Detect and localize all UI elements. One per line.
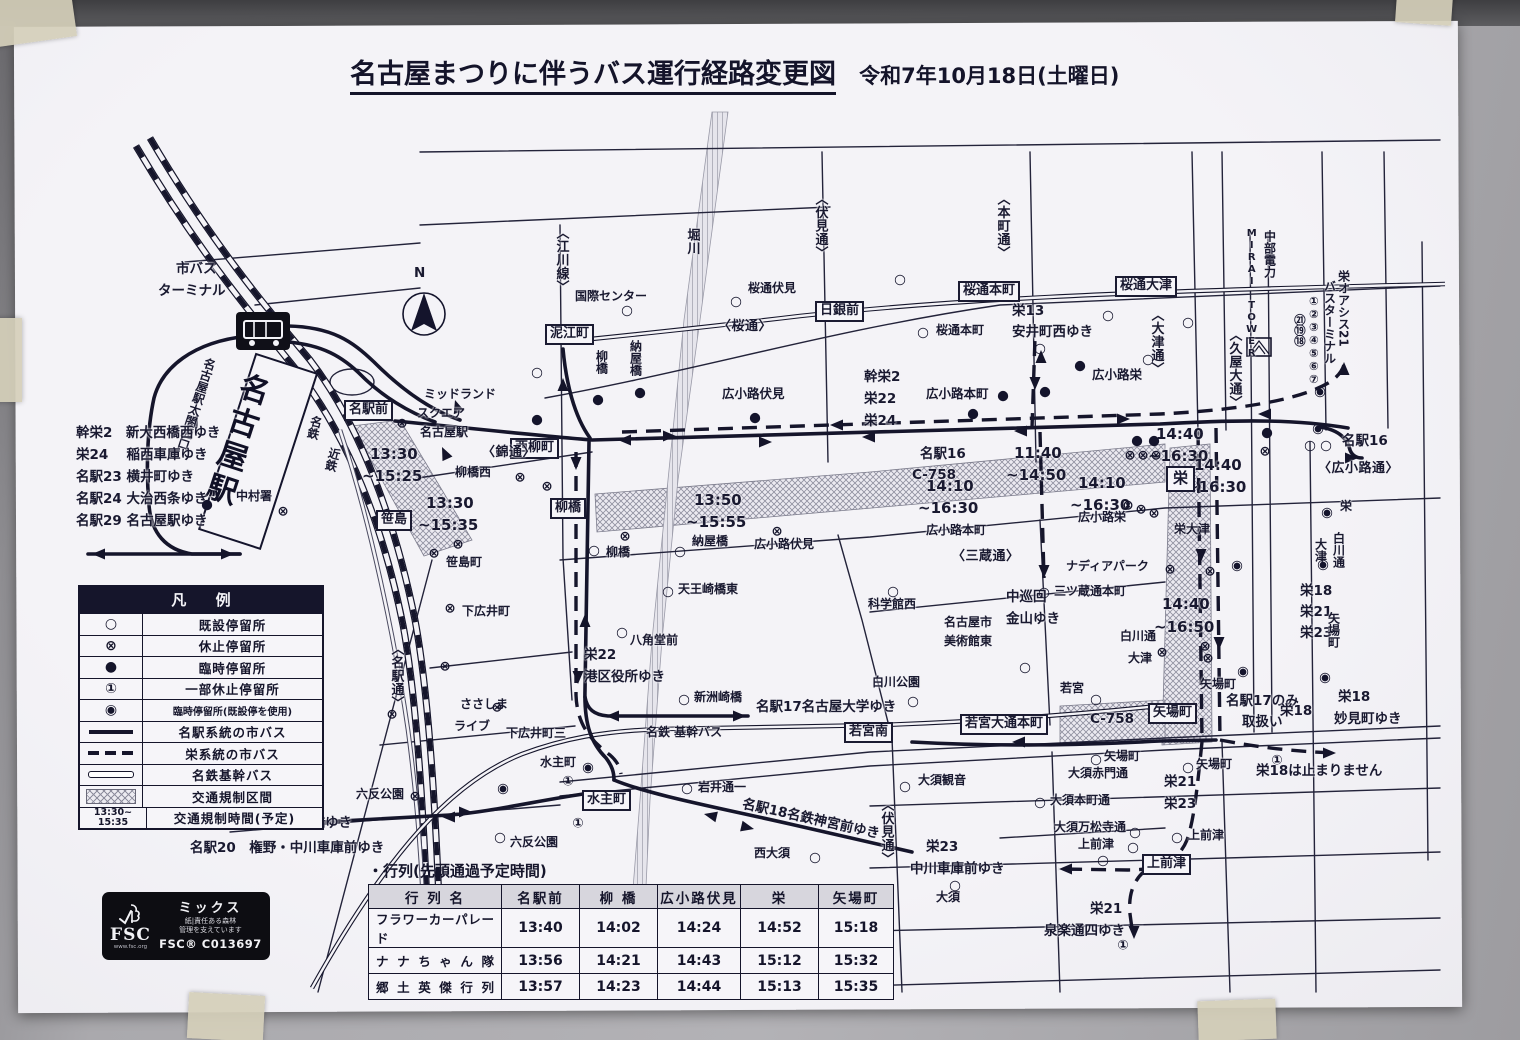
- bus-stop-symbol: ⊗: [491, 701, 502, 715]
- legend-symbol: ●: [80, 657, 143, 678]
- bus-stop-symbol: ⊗: [409, 790, 420, 804]
- schedule-note: ・行列(先頭通過予定時間): [368, 860, 894, 881]
- bus-stop-symbol: ⊗: [444, 602, 455, 616]
- col-header: 行 列 名: [369, 885, 502, 909]
- time-cell: 15:35: [819, 974, 894, 1000]
- bus-stop-symbol: ⊗: [619, 530, 630, 544]
- time-cell: 13:56: [502, 948, 580, 974]
- legend-rows: ○ 既設停留所 ⊗ 休止停留所 ● 臨時停留所 ① 一部休止停留所 ◉ 臨時停留…: [80, 613, 322, 828]
- legend-symbol: [80, 786, 143, 807]
- bus-stop-symbol: ⊗: [386, 708, 397, 722]
- bus-stop-symbol: ○: [621, 304, 633, 318]
- bus-stop-symbol: ○: [1090, 753, 1102, 767]
- bus-stop-symbol: ○: [616, 626, 628, 640]
- bus-stop-symbol: ○: [678, 693, 690, 707]
- bus-stop-symbol: ①: [562, 775, 573, 789]
- fsc-brand: FSC: [110, 927, 151, 944]
- parade-name: ナナちゃん隊: [369, 948, 502, 974]
- bus-stop-symbol: ⊗: [1164, 563, 1175, 577]
- legend-row: ○ 既設停留所: [80, 613, 322, 635]
- col-header: 広小路伏見: [658, 885, 741, 909]
- legend-symbol: [80, 765, 143, 786]
- legend-row: ⊗ 休止停留所: [80, 635, 322, 657]
- time-cell: 14:24: [658, 909, 741, 948]
- legend-symbol: ○: [80, 614, 143, 635]
- bus-stop-symbol: ○: [531, 366, 543, 380]
- col-header: 名駅前: [502, 885, 580, 909]
- bus-stop-symbol: ◉: [1312, 422, 1324, 436]
- legend-row: ● 臨時停留所: [80, 656, 322, 678]
- legend-box: 凡 例 ○ 既設停留所 ⊗ 休止停留所 ● 臨時停留所 ① 一部休止停留所 ◉ …: [78, 585, 324, 830]
- bus-stop-symbol: ①: [572, 817, 583, 831]
- time-cell: 15:32: [819, 948, 894, 974]
- bus-stop-symbol: ⊗: [1202, 652, 1213, 666]
- legend-label: 名駅系統の市バス: [143, 722, 322, 743]
- bus-stop-symbol: ○: [1182, 761, 1194, 775]
- bus-stop-symbol: ●: [1074, 359, 1086, 373]
- col-header: 矢場町: [819, 885, 894, 909]
- legend-row: 名鉄基幹バス: [80, 764, 322, 786]
- fsc-tree-icon: [117, 901, 143, 927]
- bus-stop-symbol: ○: [1304, 439, 1316, 453]
- bus-stop-symbol: ⊗: [1259, 445, 1270, 459]
- bus-stop-symbol: ●: [201, 498, 213, 512]
- table-row: 郷土英傑行列 13:57 14:23 14:44 15:13 15:35: [369, 974, 894, 1000]
- bus-stop-symbol: ⊗: [428, 547, 439, 561]
- legend-row: 交通規制区間: [80, 785, 322, 807]
- bus-stop-symbol: ○: [1102, 309, 1114, 323]
- page-title: 名古屋まつりに伴うバス運行経路変更図: [350, 59, 836, 95]
- bus-stop-symbol: ①: [1271, 754, 1282, 768]
- bus-stop-symbol: ◉: [1317, 558, 1329, 572]
- bus-stop-symbol: ○: [1320, 439, 1332, 453]
- bus-stop-symbol: ○: [494, 831, 506, 845]
- legend-symbol: ◉: [80, 700, 143, 721]
- bus-stop-symbol: ○: [674, 545, 686, 559]
- bus-stop-symbol: ○: [917, 326, 929, 340]
- bus-stop-symbol: ◉: [497, 782, 509, 796]
- bus-stop-symbol: ○: [1171, 831, 1183, 845]
- bus-stop-symbol: ○: [894, 273, 906, 287]
- time-cell: 13:57: [502, 974, 580, 1000]
- bus-stop-symbol: ◉: [582, 761, 594, 775]
- fsc-mix-label: ミックス: [179, 901, 243, 917]
- photo-scene: 市バスターミナルN〈江川線〉堀川国際センター桜通伏見〈桜通〉泥江町日銀前桜通本町…: [0, 0, 1520, 1040]
- bus-stop-symbol: ○: [662, 585, 674, 599]
- bus-stop-symbol: ○: [1129, 826, 1141, 840]
- bus-stop-symbol: ●: [749, 411, 761, 425]
- parade-schedule: ・行列(先頭通過予定時間) 行 列 名 名駅前 柳 橋 広小路伏見 栄 矢場町 …: [368, 860, 894, 1000]
- bus-stop-symbol: ⊗: [452, 538, 463, 552]
- bus-stop-symbol: ○: [949, 879, 961, 893]
- legend-symbol: [80, 722, 143, 743]
- bus-stop-symbol: ○: [1034, 796, 1046, 810]
- time-cell: 14:52: [741, 909, 819, 948]
- legend-label: 交通規制時間(予定): [147, 808, 322, 829]
- bus-stop-symbol: ○: [1038, 586, 1050, 600]
- bus-stop-symbol: ⊗: [277, 505, 288, 519]
- bus-stop-symbol: ◉: [1231, 559, 1243, 573]
- bus-stop-symbol: ⊗: [439, 660, 450, 674]
- time-cell: 15:12: [741, 948, 819, 974]
- schedule-header-row: 行 列 名 名駅前 柳 橋 広小路伏見 栄 矢場町: [369, 885, 894, 909]
- legend-label: 休止停留所: [143, 636, 322, 657]
- legend-row: ① 一部休止停留所: [80, 678, 322, 700]
- bus-stop-symbol: ○: [1034, 342, 1046, 356]
- bus-stop-symbol: ①: [1117, 939, 1128, 953]
- time-cell: 15:18: [819, 909, 894, 948]
- bus-stop-symbol: ⊗: [1122, 499, 1133, 513]
- legend-row: 名駅系統の市バス: [80, 721, 322, 743]
- bus-stop-symbol: ⊗: [1124, 449, 1135, 463]
- bus-stop-symbol: ◉: [1319, 671, 1331, 685]
- bus-stop-symbol: ⊗: [1156, 646, 1167, 660]
- legend-symbol: [80, 743, 143, 764]
- bus-stop-symbol: ●: [967, 407, 979, 421]
- bus-stop-symbol: ⊗: [541, 480, 552, 494]
- bus-stop-symbol: ⊗: [1135, 503, 1146, 517]
- bus-stop-symbol: ◉: [1314, 385, 1326, 399]
- fsc-url: www.fsc.org: [114, 945, 147, 951]
- bus-stop-symbol: ○: [907, 695, 919, 709]
- bus-stop-symbol: ○: [730, 295, 742, 309]
- bus-stop-symbol: ⊗: [396, 417, 407, 431]
- time-cell: 13:40: [502, 909, 580, 948]
- bus-stop-symbol: ○: [899, 780, 911, 794]
- bus-stop-symbol: ●: [592, 393, 604, 407]
- parade-name: 郷土英傑行列: [369, 974, 502, 1000]
- legend-title: 凡 例: [80, 587, 322, 613]
- legend-symbol: ⊗: [80, 636, 143, 657]
- time-cell: 14:02: [580, 909, 658, 948]
- bus-stop-symbol: ○: [1142, 353, 1154, 367]
- bus-stop-symbol: ⊗: [1204, 565, 1215, 579]
- legend-row: 13:30~ 15:35 交通規制時間(予定): [80, 807, 322, 829]
- bus-stop-symbol: ⊗: [1148, 507, 1159, 521]
- time-cell: 14:23: [580, 974, 658, 1000]
- legend-label: 一部休止停留所: [143, 679, 322, 700]
- bus-stop-symbol: ●: [634, 386, 646, 400]
- bus-stop-symbol: ●: [1039, 385, 1051, 399]
- bus-stop-symbol: ○: [1019, 661, 1031, 675]
- bus-stop-symbol: ●: [997, 389, 1009, 403]
- legend-label: 臨時停留所(既設停を使用): [143, 700, 322, 721]
- tape: [187, 992, 265, 1040]
- bus-stop-symbol: ⊗: [1150, 449, 1161, 463]
- fsc-code: FSC® C013697: [159, 937, 262, 951]
- legend-row: 栄系統の市バス: [80, 742, 322, 764]
- legend-label: 名鉄基幹バス: [143, 765, 322, 786]
- bus-stop-symbol: ○: [588, 544, 600, 558]
- legend-label: 臨時停留所: [143, 657, 322, 678]
- poster-header: 名古屋まつりに伴うバス運行経路変更図 令和7年10月18日(土曜日): [350, 52, 1119, 91]
- bus-stop-symbol: ◉: [1321, 506, 1333, 520]
- bus-stop-symbol: ○: [1182, 316, 1194, 330]
- bus-stop-symbol: ⊗: [514, 471, 525, 485]
- tape: [1395, 0, 1453, 26]
- bus-stop-symbol: ◉: [1237, 665, 1249, 679]
- legend-row: ◉ 臨時停留所(既設停を使用): [80, 699, 322, 721]
- legend-label: 既設停留所: [143, 614, 322, 635]
- time-cell: 14:44: [658, 974, 741, 1000]
- bus-stop-symbol: ○: [1090, 693, 1102, 707]
- bus-stop-symbol: ⊗: [771, 525, 782, 539]
- bus-stop-symbol: ●: [1261, 426, 1273, 440]
- tape: [0, 318, 22, 402]
- parade-name: フラワーカーパレード: [369, 909, 502, 948]
- time-cell: 14:43: [658, 948, 741, 974]
- bus-stop-symbol: ○: [1127, 841, 1139, 855]
- tape: [1197, 999, 1276, 1040]
- bus-stop-symbol: ○: [1097, 854, 1109, 868]
- bus-stop-symbol: ⊗: [1137, 449, 1148, 463]
- col-header: 柳 橋: [580, 885, 658, 909]
- bus-stop-symbol: ●: [1148, 434, 1160, 448]
- col-header: 栄: [741, 885, 819, 909]
- legend-symbol: ①: [80, 679, 143, 700]
- poster-date: 令和7年10月18日(土曜日): [859, 64, 1119, 88]
- time-cell: 15:13: [741, 974, 819, 1000]
- fsc-caption: 管理を支えています: [179, 926, 242, 935]
- bus-stop-symbol: ●: [1131, 434, 1143, 448]
- table-row: ナナちゃん隊 13:56 14:21 14:43 15:12 15:32: [369, 948, 894, 974]
- legend-label: 交通規制区間: [143, 786, 322, 807]
- table-row: フラワーカーパレード 13:40 14:02 14:24 14:52 15:18: [369, 909, 894, 948]
- bus-stop-symbol: ●: [531, 413, 543, 427]
- fsc-logo: FSC www.fsc.org: [110, 901, 151, 951]
- bus-stop-symbol: ○: [681, 782, 693, 796]
- bus-stop-symbol: ○: [887, 585, 899, 599]
- fsc-badge: FSC www.fsc.org ミックス 紙|責任ある森林 管理を支えています …: [102, 892, 270, 960]
- legend-symbol: 13:30~ 15:35: [80, 808, 147, 829]
- fsc-caption: 紙|責任ある森林: [185, 917, 236, 926]
- time-cell: 14:21: [580, 948, 658, 974]
- schedule-table: 行 列 名 名駅前 柳 橋 広小路伏見 栄 矢場町 フラワーカーパレード 13:…: [368, 884, 894, 1000]
- legend-label: 栄系統の市バス: [143, 743, 322, 764]
